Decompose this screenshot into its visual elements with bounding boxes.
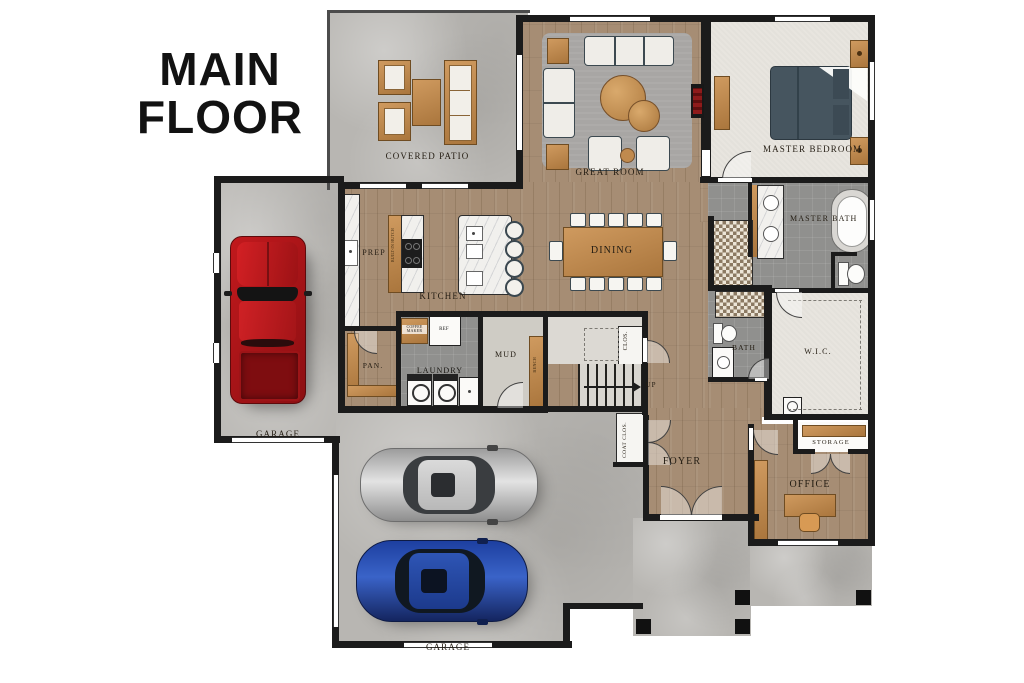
- porch-column: [735, 619, 750, 634]
- wall: [831, 252, 835, 291]
- window: [422, 183, 468, 189]
- wall: [563, 603, 570, 648]
- prep-label: PREP: [357, 248, 391, 258]
- patio-sofa: [444, 60, 477, 145]
- wall: [848, 449, 872, 454]
- dryer: [433, 374, 458, 406]
- bedroom-console: [714, 76, 730, 130]
- page-title: MAIN FLOOR: [120, 46, 320, 142]
- master-bath-label: MASTER BATH: [790, 214, 836, 224]
- dining-chair: [608, 277, 624, 291]
- stool-1: [505, 221, 524, 240]
- covered-patio-label: COVERED PATIO: [355, 151, 500, 162]
- bath2-shower: [715, 291, 765, 318]
- blue-car: [356, 536, 538, 630]
- pantry-label: PAN.: [357, 361, 389, 370]
- patio-chair-2: [378, 102, 411, 141]
- toilet-bowl: [847, 264, 865, 284]
- silver-car: [360, 446, 546, 528]
- patio-table: [412, 79, 441, 126]
- side-table-1: [547, 38, 569, 64]
- bath-label: BATH: [727, 343, 761, 352]
- wic-shelf-right: [860, 300, 861, 410]
- mud-bench: BENCH: [529, 336, 544, 408]
- wall: [748, 183, 752, 257]
- wall: [613, 462, 648, 467]
- window: [360, 183, 406, 189]
- window: [869, 200, 875, 240]
- door-opening: [755, 378, 767, 381]
- office-bookcase: [754, 460, 768, 540]
- dining-chair: [570, 213, 586, 227]
- wall: [708, 285, 772, 291]
- wall: [708, 216, 714, 291]
- kitchen-island: [458, 215, 512, 295]
- refrigerator: REF: [429, 315, 461, 346]
- wall: [396, 311, 548, 317]
- stool-3: [505, 259, 524, 278]
- accent-table: [620, 148, 635, 163]
- dining-chair: [570, 277, 586, 291]
- wall: [831, 252, 857, 256]
- patio-door-opening: [517, 55, 522, 150]
- wall: [764, 288, 772, 420]
- wall: [793, 419, 798, 453]
- porch-column: [856, 590, 871, 605]
- armchair-1: [588, 136, 622, 171]
- wall: [338, 182, 345, 412]
- coffee-maker-label: COFFEE MAKER: [402, 325, 427, 334]
- master-bedroom-label: MASTER BEDROOM: [763, 144, 828, 155]
- patio-edge: [327, 10, 530, 13]
- garage-bottom-label: GARAGE: [413, 642, 483, 653]
- dining-chair: [627, 213, 643, 227]
- dining-chair: [646, 213, 662, 227]
- bench-label: BENCH: [533, 357, 538, 373]
- wic-shelf-bottom: [788, 409, 862, 410]
- stairs-open-above: [584, 328, 619, 361]
- foyer-label: FOYER: [652, 456, 712, 469]
- great-room-label: GREAT ROOM: [555, 167, 665, 178]
- pantry-shelf-bottom: [347, 385, 397, 397]
- armchair-2: [636, 136, 670, 171]
- wall: [563, 603, 643, 609]
- garage-door: [333, 475, 339, 627]
- coat-closet-label: COAT CLOS.: [622, 417, 640, 462]
- up-label: UP: [642, 381, 660, 390]
- fireplace-icon: [693, 88, 702, 114]
- ref-label: REF: [430, 327, 458, 333]
- wall: [642, 311, 648, 415]
- laundry-label: LAUNDRY: [405, 366, 475, 376]
- sofa-top: [584, 36, 674, 66]
- dining-chair: [549, 241, 563, 261]
- wall: [548, 311, 648, 317]
- nightstand-1: [850, 40, 869, 68]
- dining-label: DINING: [580, 245, 644, 258]
- wall: [770, 414, 875, 420]
- window: [778, 540, 838, 546]
- bed: [770, 66, 852, 140]
- stool-2: [505, 240, 524, 259]
- porch-shallow: [750, 544, 872, 606]
- mud-label: MUD: [488, 350, 524, 360]
- closet-label: CLOS.: [623, 331, 631, 350]
- porch-column: [636, 619, 651, 634]
- coffee-cabinet: COFFEE MAKER: [401, 318, 428, 344]
- office-label: OFFICE: [779, 479, 841, 492]
- door-opening: [702, 150, 710, 176]
- office-chair: [799, 513, 820, 532]
- window: [869, 62, 875, 120]
- coffee-table-small: [628, 100, 660, 132]
- porch-column: [735, 590, 750, 605]
- wall: [214, 176, 344, 183]
- wall: [543, 315, 548, 413]
- sofa-left: [543, 68, 575, 138]
- stairs-arrow-head: [633, 382, 641, 392]
- vanity-counter: [757, 185, 784, 259]
- storage-shelf: [802, 425, 866, 437]
- stairs-arrow-line: [584, 386, 634, 388]
- dining-chair: [589, 277, 605, 291]
- window: [775, 16, 830, 22]
- bath2-toilet-bowl: [721, 325, 737, 342]
- window: [570, 16, 650, 22]
- floor-plan: MAIN FLOOR: [0, 0, 1024, 683]
- wall: [478, 313, 483, 412]
- patio-edge: [327, 10, 330, 190]
- storage-label: STORAGE: [800, 439, 862, 447]
- dining-chair: [589, 213, 605, 227]
- door-opening: [749, 428, 753, 450]
- wall: [214, 176, 221, 443]
- dining-chair: [663, 241, 677, 261]
- garage-left-label: GARAGE: [243, 429, 313, 440]
- kitchen-label: KITCHEN: [408, 291, 478, 302]
- red-truck: [230, 236, 314, 412]
- patio-chair-1: [378, 60, 411, 95]
- dining-chair: [627, 277, 643, 291]
- stool-4: [505, 278, 524, 297]
- laundry-sink: [459, 377, 480, 406]
- dining-chair: [608, 213, 624, 227]
- range-counter: [401, 215, 424, 293]
- master-shower: [711, 220, 753, 291]
- door-opening: [643, 338, 647, 362]
- front-door-opening: [660, 515, 722, 520]
- door-opening: [775, 289, 799, 292]
- dining-chair: [646, 277, 662, 291]
- wall: [548, 406, 648, 412]
- washer: [407, 374, 432, 406]
- garage-window: [213, 253, 220, 273]
- garage-window: [213, 343, 220, 363]
- wic-label: W.I.C.: [798, 347, 838, 357]
- builtin-hutch-label: BUILT-IN HUTCH: [391, 228, 395, 262]
- door-opening: [718, 178, 752, 182]
